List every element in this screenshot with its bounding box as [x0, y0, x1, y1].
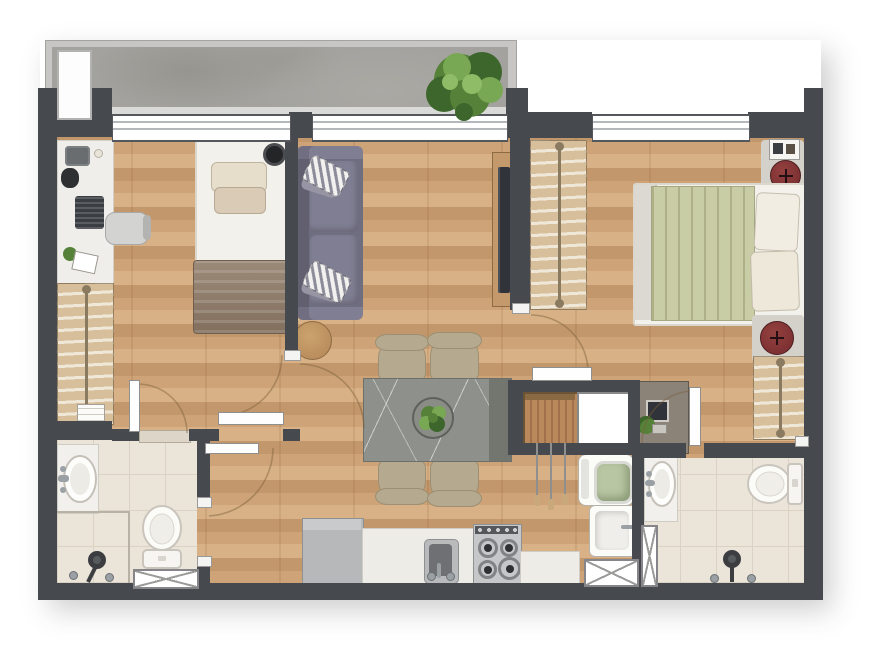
- door-leaf-bathroom1: [129, 380, 140, 432]
- door-arc-living: [300, 364, 364, 429]
- door-leaf-bedroom2: [532, 367, 592, 381]
- door-arc-bathroom1: [138, 384, 187, 433]
- door-leaf-hall: [205, 443, 259, 454]
- annotations-overlay: [0, 0, 885, 650]
- door-arc-bathroom2: [642, 391, 694, 443]
- door-arc-bedroom1: [221, 355, 282, 416]
- door-leaf-bathroom2: [689, 387, 701, 446]
- door-arc-hall: [209, 448, 273, 516]
- shower2-head: [723, 550, 741, 582]
- floor-plan: [0, 0, 885, 650]
- door-arc-bedroom2: [531, 315, 588, 372]
- door-leaf-bedroom1: [218, 412, 284, 425]
- hanging-skewers: [534, 443, 568, 510]
- shower1-head: [88, 551, 106, 582]
